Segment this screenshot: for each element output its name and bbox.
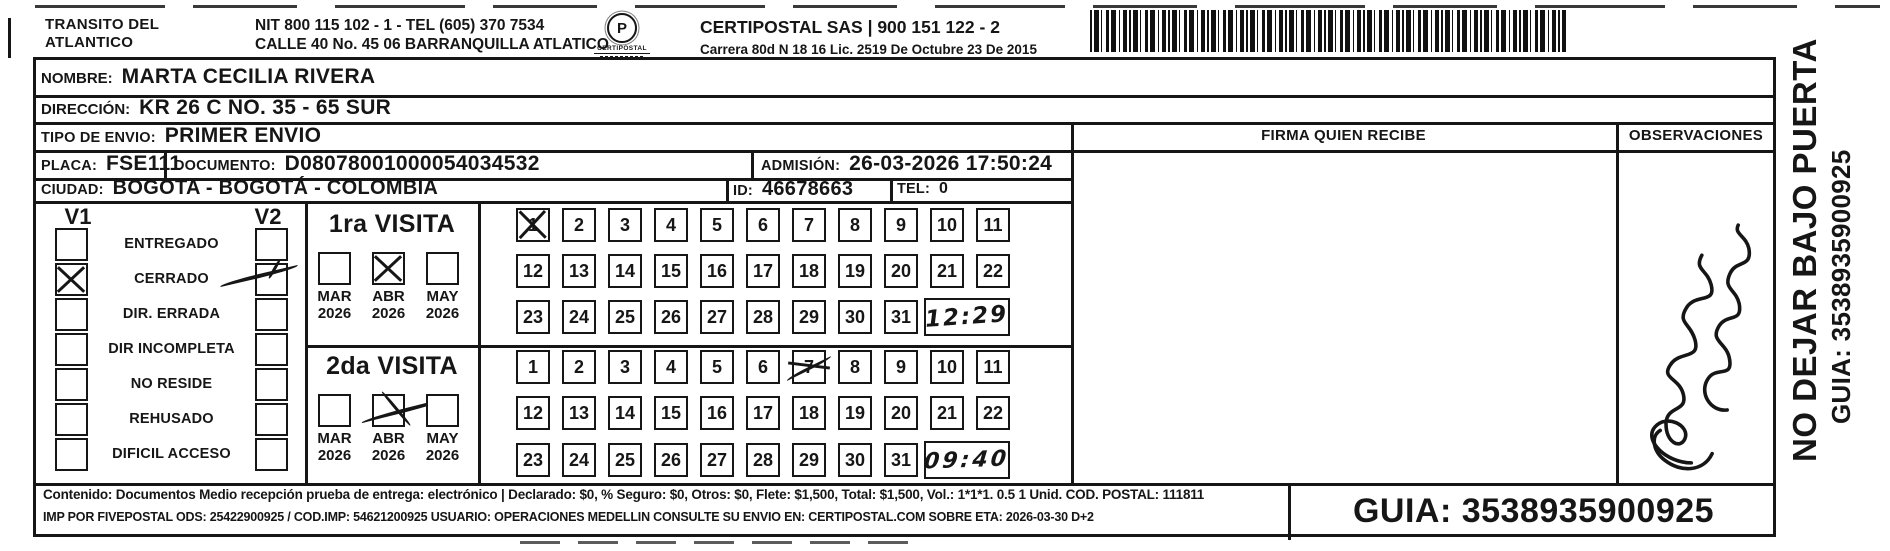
v1-checkbox <box>55 333 88 366</box>
day-15: 15 <box>654 396 688 430</box>
day-9: 9 <box>884 350 918 384</box>
day-27: 27 <box>700 300 734 334</box>
month-option-may: MAY2026 <box>421 252 464 322</box>
day-8: 8 <box>838 350 872 384</box>
day-1-crossed: 1 <box>516 208 550 242</box>
day-12: 12 <box>516 254 550 288</box>
month-option-abr: ABR2026 <box>367 394 410 464</box>
company-contact: NIT 800 115 102 - 1 - TEL (605) 370 7534… <box>255 16 609 54</box>
v2-checkbox <box>255 333 288 366</box>
day-27: 27 <box>700 443 734 477</box>
checkbox <box>318 394 351 427</box>
visit2-title: 2da VISITA <box>308 352 476 381</box>
day-14: 14 <box>608 396 642 430</box>
scan-artifact-line <box>520 541 910 544</box>
day-28: 28 <box>746 443 780 477</box>
day-29: 29 <box>792 300 826 334</box>
scan-artifact-line <box>8 18 11 58</box>
divider <box>305 201 308 483</box>
logo-wordmark: CERTIPOSTAL <box>594 45 650 54</box>
month-label: MAY <box>421 430 464 447</box>
status-label: DIR INCOMPLETA <box>88 341 255 357</box>
year-label: 2026 <box>313 305 356 322</box>
status-row-dir-errada: DIR. ERRADA <box>36 297 305 331</box>
nombre-row: NOMBRE: MARTA CECILIA RIVERA <box>41 65 375 89</box>
divider <box>751 150 754 178</box>
v1-checkbox <box>55 298 88 331</box>
tel-value: 0 <box>939 180 948 198</box>
v1-checkbox <box>55 228 88 261</box>
sender-line1: TRANSITO DEL <box>45 16 159 34</box>
handwritten-time: 12:29 <box>925 301 1010 333</box>
day-4: 4 <box>654 350 688 384</box>
address-line: CALLE 40 No. 45 06 BARRANQUILLA ATLATICO <box>255 35 609 54</box>
day-14: 14 <box>608 254 642 288</box>
handwritten-time: 09:40 <box>923 446 1011 474</box>
visit1-title: 1ra VISITA <box>308 210 476 239</box>
divider <box>890 178 893 201</box>
v1-checkbox <box>55 438 88 471</box>
day-21: 21 <box>930 396 964 430</box>
tipo-envio-value: PRIMER ENVIO <box>165 124 321 148</box>
day-25: 25 <box>608 300 642 334</box>
footer-content-line: Contenido: Documentos Medio recepción pr… <box>43 487 1204 502</box>
month-label: ABR <box>367 430 410 447</box>
day-19: 19 <box>838 254 872 288</box>
documento-value: D08078001000054034532 <box>285 152 540 176</box>
day-16: 16 <box>700 396 734 430</box>
direccion-row: DIRECCIÓN: KR 26 C NO. 35 - 65 SUR <box>41 96 391 120</box>
day-13: 13 <box>562 254 596 288</box>
divider <box>36 201 1071 204</box>
v1-checkbox <box>55 368 88 401</box>
v1-checkbox-checked <box>55 263 88 296</box>
day-1: 1 <box>516 350 550 384</box>
day-26: 26 <box>654 300 688 334</box>
v2-checkbox <box>255 228 288 261</box>
day-20: 20 <box>884 254 918 288</box>
day-21: 21 <box>930 254 964 288</box>
visit2-time-box: 09:40 <box>924 441 1010 479</box>
checkbox <box>318 252 351 285</box>
day-11: 11 <box>976 350 1010 384</box>
day-18: 18 <box>792 396 826 430</box>
ciudad-label: CIUDAD: <box>41 182 104 198</box>
year-label: 2026 <box>367 305 410 322</box>
status-row-entregado: ENTREGADO <box>36 227 305 261</box>
day-30: 30 <box>838 300 872 334</box>
sender-name: TRANSITO DEL ATLANTICO <box>45 16 159 52</box>
checkbox-checked <box>372 394 405 427</box>
day-26: 26 <box>654 443 688 477</box>
day-2: 2 <box>562 208 596 242</box>
divider <box>726 178 729 201</box>
day-5: 5 <box>700 208 734 242</box>
day-24: 24 <box>562 443 596 477</box>
documento-label: DOCUMENTO: <box>174 158 276 174</box>
status-row-no-reside: NO RESIDE <box>36 367 305 401</box>
footer-imp-line: IMP POR FIVEPOSTAL ODS: 25422900925 / CO… <box>43 510 1094 524</box>
status-row-dificil-acceso: DIFICIL ACCESO <box>36 437 305 471</box>
day-22: 22 <box>976 254 1010 288</box>
day-4: 4 <box>654 208 688 242</box>
day-10: 10 <box>930 350 964 384</box>
day-31: 31 <box>884 443 918 477</box>
v2-checkbox <box>255 368 288 401</box>
month-option-mar: MAR2026 <box>313 394 356 464</box>
divider <box>1071 122 1074 483</box>
year-label: 2026 <box>367 447 410 464</box>
day-17: 17 <box>746 396 780 430</box>
direccion-label: DIRECCIÓN: <box>41 101 130 118</box>
month-label: MAR <box>313 288 356 305</box>
tel-label: TEL: <box>897 181 930 197</box>
day-11: 11 <box>976 208 1010 242</box>
tipo-envio-label: TIPO DE ENVIO: <box>41 130 156 146</box>
placa-value: FSE111 <box>106 152 181 176</box>
nit-line: NIT 800 115 102 - 1 - TEL (605) 370 7534 <box>255 16 609 35</box>
month-option-abr: ABR2026 <box>367 252 410 322</box>
day-13: 13 <box>562 396 596 430</box>
status-row-cerrado: CERRADO <box>36 262 305 296</box>
v2-checkbox-checked <box>255 263 288 296</box>
day-23: 23 <box>516 443 550 477</box>
day-23: 23 <box>516 300 550 334</box>
day-30: 30 <box>838 443 872 477</box>
visit1-month-checkboxes: MAR2026ABR2026MAY2026 <box>313 252 464 322</box>
id-cell: ID: 46678663 <box>733 178 853 201</box>
form-table: NOMBRE: MARTA CECILIA RIVERA DIRECCIÓN: … <box>33 57 1776 537</box>
tipo-envio-row: TIPO DE ENVIO: PRIMER ENVIO <box>41 124 321 148</box>
sender-line2: ATLANTICO <box>45 34 159 52</box>
status-label: DIFICIL ACCESO <box>88 446 255 462</box>
signature <box>1620 207 1776 483</box>
barcode <box>1090 10 1566 52</box>
month-option-mar: MAR2026 <box>313 252 356 322</box>
day-12: 12 <box>516 396 550 430</box>
day-22: 22 <box>976 396 1010 430</box>
logo-circle-icon: P <box>607 13 637 43</box>
year-label: 2026 <box>421 447 464 464</box>
day-8: 8 <box>838 208 872 242</box>
operator-info: CERTIPOSTAL SAS | 900 151 122 - 2 Carrer… <box>700 17 1037 57</box>
divider <box>305 345 1071 348</box>
status-label: NO RESIDE <box>88 376 255 392</box>
checkbox-checked <box>372 252 405 285</box>
scan-artifact-line <box>35 5 1880 8</box>
admision-label: ADMISIÓN: <box>761 158 840 174</box>
day-7: 7 <box>792 208 826 242</box>
observaciones-column-header: OBSERVACIONES <box>1616 127 1776 144</box>
year-label: 2026 <box>313 447 356 464</box>
day-10: 10 <box>930 208 964 242</box>
admision-value: 26-03-2026 17:50:24 <box>849 152 1052 176</box>
license-line: Carrera 80d N 18 16 Lic. 2519 De Octubre… <box>700 42 1037 57</box>
day-24: 24 <box>562 300 596 334</box>
ciudad-cell: CIUDAD: BOGOTA - BOGOTÁ - COLOMBIA <box>41 177 438 200</box>
day-3: 3 <box>608 208 642 242</box>
day-16: 16 <box>700 254 734 288</box>
status-label: DIR. ERRADA <box>88 306 255 322</box>
day-17: 17 <box>746 254 780 288</box>
placa-cell: PLACA: FSE111 <box>41 152 181 176</box>
status-label: CERRADO <box>88 271 255 287</box>
company-line: CERTIPOSTAL SAS | 900 151 122 - 2 <box>700 17 1037 38</box>
month-option-may: MAY2026 <box>421 394 464 464</box>
month-label: ABR <box>367 288 410 305</box>
v2-checkbox <box>255 403 288 436</box>
day-15: 15 <box>654 254 688 288</box>
status-row-dir-incompleta: DIR INCOMPLETA <box>36 332 305 366</box>
day-29: 29 <box>792 443 826 477</box>
day-5: 5 <box>700 350 734 384</box>
id-label: ID: <box>733 183 753 199</box>
direccion-value: KR 26 C NO. 35 - 65 SUR <box>139 96 391 120</box>
status-label: REHUSADO <box>88 411 255 427</box>
ciudad-value: BOGOTA - BOGOTÁ - COLOMBIA <box>113 177 439 200</box>
guia-number: GUIA: 3538935900925 <box>1288 483 1779 540</box>
nombre-label: NOMBRE: <box>41 70 113 87</box>
checkbox <box>426 394 459 427</box>
day-7-crossed: 7 <box>792 350 826 384</box>
side-note-no-dejar: NO DEJAR BAJO PUERTA <box>1786 38 1824 462</box>
id-value: 46678663 <box>762 178 853 201</box>
scanned-delivery-form: TRANSITO DEL ATLANTICO NIT 800 115 102 -… <box>0 0 1890 551</box>
day-3: 3 <box>608 350 642 384</box>
firma-column-header: FIRMA QUIEN RECIBE <box>1071 127 1616 144</box>
documento-cell: DOCUMENTO: D08078001000054034532 <box>174 152 540 176</box>
divider <box>478 201 481 483</box>
day-18: 18 <box>792 254 826 288</box>
day-19: 19 <box>838 396 872 430</box>
month-label: MAY <box>421 288 464 305</box>
nombre-value: MARTA CECILIA RIVERA <box>122 65 376 89</box>
side-note-guia: GUIA: 3538935900925 <box>1826 149 1857 424</box>
divider <box>1616 122 1619 483</box>
year-label: 2026 <box>421 305 464 322</box>
placa-label: PLACA: <box>41 158 97 174</box>
v2-checkbox <box>255 438 288 471</box>
day-6: 6 <box>746 208 780 242</box>
status-row-rehusado: REHUSADO <box>36 402 305 436</box>
day-20: 20 <box>884 396 918 430</box>
admision-cell: ADMISIÓN: 26-03-2026 17:50:24 <box>761 152 1052 176</box>
visit1-time-box: 12:29 <box>924 298 1010 336</box>
day-6: 6 <box>746 350 780 384</box>
month-label: MAR <box>313 430 356 447</box>
status-label: ENTREGADO <box>88 236 255 252</box>
tel-cell: TEL: 0 <box>897 180 948 198</box>
day-28: 28 <box>746 300 780 334</box>
certipostal-logo-icon: P CERTIPOSTAL <box>594 13 650 57</box>
day-9: 9 <box>884 208 918 242</box>
visit2-month-checkboxes: MAR2026ABR2026MAY2026 <box>313 394 464 464</box>
v1-checkbox <box>55 403 88 436</box>
day-31: 31 <box>884 300 918 334</box>
day-25: 25 <box>608 443 642 477</box>
v2-checkbox <box>255 298 288 331</box>
day-2: 2 <box>562 350 596 384</box>
checkbox <box>426 252 459 285</box>
